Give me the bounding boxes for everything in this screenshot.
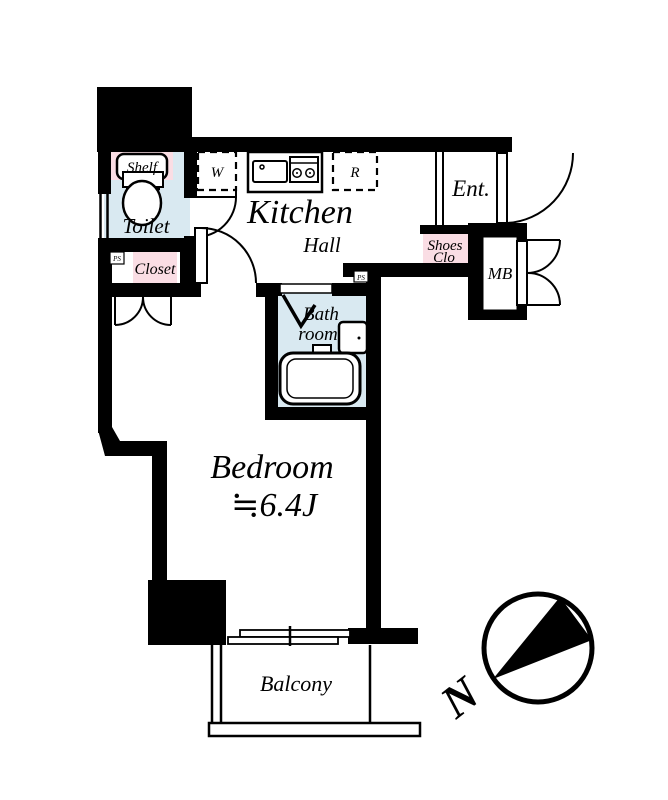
bedroom-size-label: ≒6.4J xyxy=(231,487,319,524)
compass: N xyxy=(430,594,592,728)
ps-center-label: PS xyxy=(356,274,365,282)
wall-left-upper xyxy=(98,152,111,194)
wall-toilet-bottom xyxy=(98,238,197,252)
floor-plan-drawing: N Shelf Toilet PS Closet W R Kitchen Hal… xyxy=(0,0,668,800)
meter-box-double-doors xyxy=(527,240,560,305)
refrigerator-label: R xyxy=(349,165,359,181)
wall-below-closet xyxy=(110,283,201,297)
bathroom-label-line2: room xyxy=(298,324,337,345)
bedroom-door-swing-arc xyxy=(201,228,256,283)
wall-left-lower xyxy=(152,455,167,585)
wall-bath-left xyxy=(265,283,278,420)
bedroom-door-leaf xyxy=(195,228,207,283)
wall-right xyxy=(366,268,381,642)
compass-north-label: N xyxy=(430,666,490,728)
closet-label: Closet xyxy=(135,261,176,278)
wall-top-left-block xyxy=(97,87,192,152)
balcony-label: Balcony xyxy=(260,671,332,696)
kitchen-label: Kitchen xyxy=(246,194,353,231)
entrance-label: Ent. xyxy=(451,176,490,201)
bedroom-label: Bedroom xyxy=(210,449,333,486)
burner-left-dot xyxy=(296,172,298,174)
wall-left-jog xyxy=(98,427,167,456)
wall-bottom-right xyxy=(348,628,418,644)
floor-plan-page: N Shelf Toilet PS Closet W R Kitchen Hal… xyxy=(0,0,668,800)
bedroom-door xyxy=(195,228,256,283)
ps-left-label: PS xyxy=(112,255,121,263)
burner-right-dot xyxy=(309,172,311,174)
wall-top xyxy=(192,137,512,152)
shoes-closet-label-line2: Clo xyxy=(433,250,455,266)
bathroom-label-line1: Bath xyxy=(303,304,339,325)
wall-bath-bottom xyxy=(265,407,380,420)
bathroom-sink-drain xyxy=(358,337,361,340)
bathroom-door-sill xyxy=(280,284,332,293)
kitchen-sink-icon xyxy=(253,161,287,182)
balcony-sliding-window xyxy=(228,626,350,646)
wall-left-mid xyxy=(98,243,112,433)
hall-label: Hall xyxy=(302,233,341,257)
toilet-label: Toilet xyxy=(122,214,170,238)
wall-shoes-closet-top xyxy=(420,225,477,234)
wall-bottom-left-block xyxy=(148,580,226,645)
meter-box-door-leaf xyxy=(517,241,527,305)
shelf-label: Shelf xyxy=(127,160,159,176)
bathroom-sink-icon xyxy=(339,322,367,353)
washer-label: W xyxy=(211,165,225,181)
closet-doors xyxy=(115,297,171,325)
meter-box-label: MB xyxy=(487,264,513,283)
entrance-door-leaf xyxy=(497,153,507,223)
entrance-door-swing-arc xyxy=(507,153,573,223)
